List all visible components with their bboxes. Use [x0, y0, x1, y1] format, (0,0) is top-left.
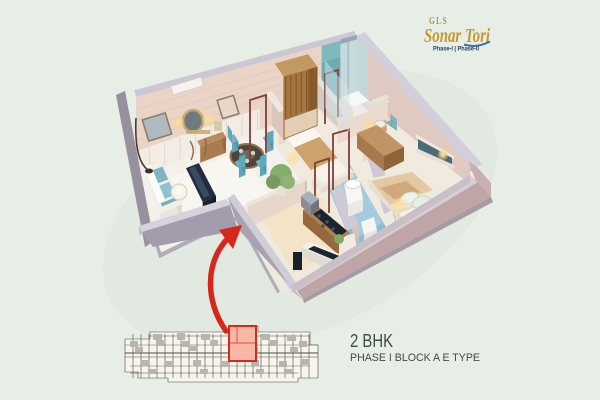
svg-text:2 BHK: 2 BHK: [350, 330, 394, 351]
svg-text:Phase-I | Phase-II: Phase-I | Phase-II: [433, 47, 479, 53]
svg-text:Sonar Tori: Sonar Tori: [424, 25, 490, 47]
svg-text:PHASE I BLOCK A E TYPE: PHASE I BLOCK A E TYPE: [350, 352, 480, 364]
